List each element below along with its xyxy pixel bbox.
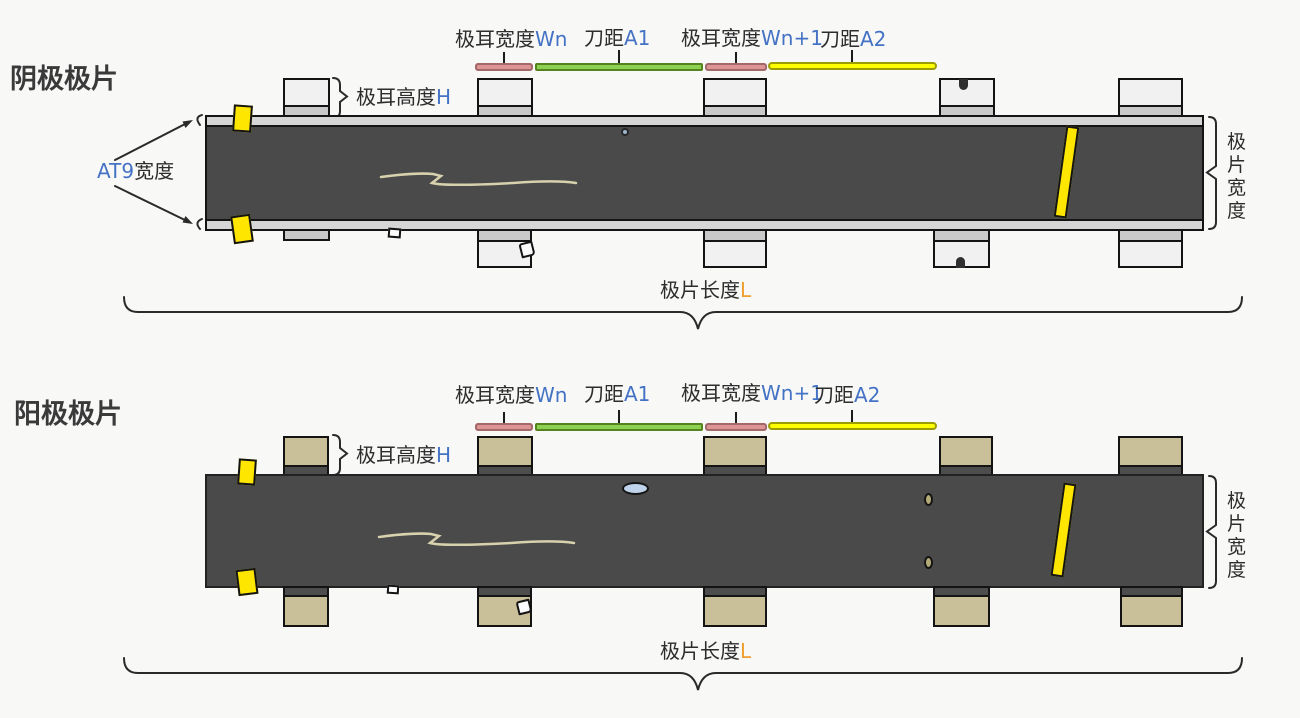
blister-defect [622, 482, 649, 495]
yellow-tape-mark [237, 458, 257, 485]
cathode-tab-top-1 [283, 78, 330, 117]
anode-tab-bottom-5 [1120, 586, 1183, 627]
tab-width-wn1-label: 极耳宽度Wn+1 [681, 382, 823, 404]
sheet-width-label: 极片宽度 [1226, 490, 1247, 582]
tab-width-wn1-bar [705, 63, 767, 71]
scratch-mark [373, 528, 583, 552]
scratch-mark [375, 168, 585, 192]
knife-a1-label: 刀距A1 [584, 27, 650, 49]
anode-tab-bottom-3 [703, 586, 767, 627]
anode-tab-top-1 [283, 436, 329, 476]
knife-a2-label: 刀距A2 [820, 28, 886, 50]
knife-a1-label: 刀距A1 [584, 383, 650, 405]
a1-pointer-tick [618, 50, 620, 64]
cathode-tab-bottom-5 [1118, 229, 1183, 268]
knife-a2-label: 刀距A2 [814, 384, 880, 406]
electrode-sheet-diagram: 阴极极片 极耳宽度Wn 刀距A1 极耳宽度Wn+1 刀距A2 极耳高度H [0, 0, 1300, 718]
tab-height-brace [331, 432, 351, 478]
particle-defect [924, 493, 933, 506]
knife-a1-bar [535, 63, 703, 71]
cathode-title: 阴极极片 [10, 57, 118, 96]
tab-width-wn-bar [475, 423, 533, 431]
cathode-tab-top-3 [703, 78, 767, 117]
burr-defect [388, 228, 402, 239]
tab-width-wn1-label: 极耳宽度Wn+1 [681, 27, 823, 49]
pinhole-defect [621, 128, 629, 136]
tab-width-wn-label: 极耳宽度Wn [455, 28, 567, 50]
cathode-tab-top-5 [1118, 78, 1183, 117]
tab-height-label: 极耳高度H [356, 444, 451, 466]
anode-tab-bottom-1 [283, 586, 329, 627]
tab-height-label: 极耳高度H [356, 86, 451, 108]
tab-width-wn1-bar [705, 423, 767, 431]
sheet-width-label: 极片宽度 [1226, 131, 1247, 223]
anode-tab-top-3 [703, 436, 767, 476]
foil-edge-top [207, 117, 1202, 127]
sheet-width-bracket [1202, 112, 1224, 238]
cathode-tab-bottom-3 [703, 229, 767, 268]
cathode-tab-top-2 [477, 78, 533, 117]
notch-defect-top [959, 79, 968, 90]
anode-tab-top-2 [477, 436, 533, 476]
notch-defect-bottom [956, 257, 965, 268]
sheet-length-brace [118, 655, 1248, 697]
knife-a2-bar [768, 422, 937, 430]
fold-defect [518, 241, 535, 259]
yellow-tape-mark [232, 104, 253, 132]
at9-width-label: AT9宽度 [97, 160, 174, 182]
anode-tab-top-5 [1118, 436, 1183, 476]
particle-defect [924, 556, 933, 569]
cut-tab-stub [283, 229, 330, 241]
tab-width-wn-label: 极耳宽度Wn [455, 384, 567, 406]
knife-a1-bar [535, 423, 703, 431]
sheet-length-brace [118, 294, 1248, 336]
anode-tab-bottom-4 [933, 586, 990, 627]
anode-tab-top-4 [939, 436, 993, 476]
tab-width-wn-bar [475, 63, 533, 71]
sheet-width-bracket [1202, 471, 1224, 597]
yellow-tape-mark [235, 568, 258, 596]
anode-title: 阳极极片 [14, 392, 122, 431]
foil-edge-bottom [207, 219, 1202, 229]
knife-a2-bar [768, 62, 937, 70]
a1-pointer-tick [618, 410, 620, 424]
burr-defect [387, 585, 400, 595]
yellow-tape-mark [230, 214, 254, 245]
